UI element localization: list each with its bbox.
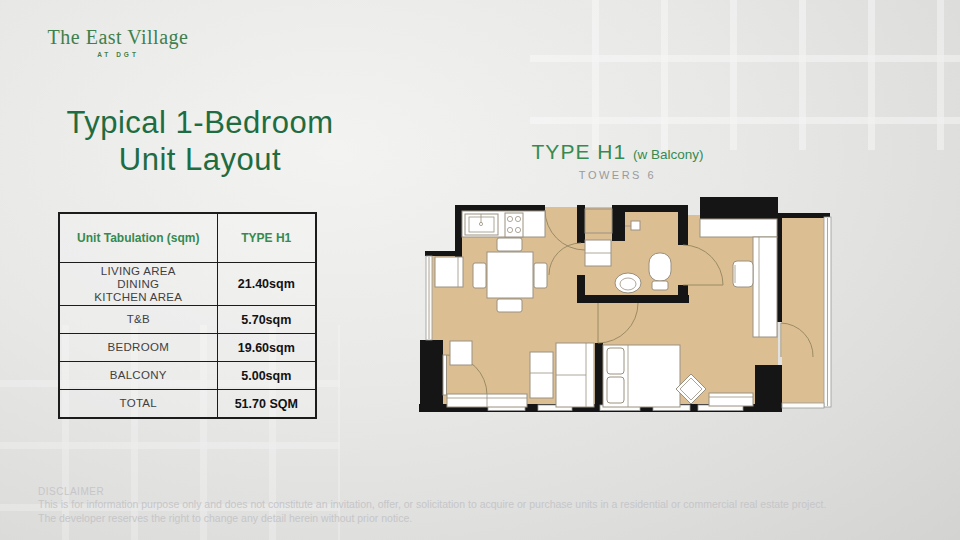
plan-type-suffix: (w Balcony): [633, 147, 704, 162]
disclaimer: DISCLAIMER This is for information purpo…: [38, 486, 938, 525]
table-header-type-h1: TYPE H1: [217, 213, 316, 263]
row-value: 5.70sqm: [217, 306, 316, 334]
page-title-line2: Unit Layout: [28, 141, 372, 178]
entry-cabinet: [450, 341, 472, 365]
plan-header: TYPE H1 (w Balcony) TOWERS 6: [460, 140, 775, 181]
entrance-door-leaf: [443, 355, 447, 395]
plan-type-label: TYPE H1: [532, 140, 627, 163]
brand-logo: The East Village AT DGT: [28, 26, 208, 58]
row-value: 51.70 SQM: [217, 390, 316, 419]
stove-icon: [505, 213, 523, 237]
row-label: BEDROOM: [59, 334, 217, 362]
row-label: T&B: [59, 306, 217, 334]
balcony-bottom-rail: [782, 403, 824, 408]
row-value: 21.40sqm: [217, 263, 316, 306]
row-value: 19.60sqm: [217, 334, 316, 362]
bedroom-bench: [709, 393, 753, 406]
dining-table: [487, 252, 533, 298]
page-title: Typical 1-Bedroom Unit Layout: [28, 104, 372, 178]
wardrobe-desk: [753, 237, 777, 337]
side-table: [530, 352, 553, 398]
plan-subtitle-towers: TOWERS 6: [460, 169, 775, 181]
refrigerator: [435, 257, 463, 287]
plan-type-title: TYPE H1 (w Balcony): [460, 140, 775, 164]
unit-tabulation-table: Unit Tabulation (sqm) TYPE H1 LIVING ARE…: [58, 212, 317, 419]
background-grid-top-right: [530, 0, 960, 150]
disclaimer-line2: The developer reserves the right to chan…: [38, 511, 938, 525]
table-row: BALCONY 5.00sqm: [59, 362, 316, 390]
row-value: 5.00sqm: [217, 362, 316, 390]
brand-name: The East Village: [28, 26, 208, 49]
disclaimer-heading: DISCLAIMER: [38, 486, 938, 497]
table-row: T&B 5.70sqm: [59, 306, 316, 334]
row-label: BALCONY: [59, 362, 217, 390]
toilet-base: [652, 281, 668, 290]
desk-chair: [733, 261, 753, 287]
disclaimer-line1: This is for information purpose only and…: [38, 497, 938, 511]
toilet-icon: [649, 253, 671, 281]
table-row: TOTAL 51.70 SQM: [59, 390, 316, 419]
row-label: LIVING AREA DINING KITCHEN AREA: [59, 263, 217, 306]
brand-tagline: AT DGT: [28, 51, 208, 58]
row-label: TOTAL: [59, 390, 217, 419]
balcony-floor: [782, 217, 828, 407]
dining-chair: [473, 263, 486, 288]
bedroom-ledge: [700, 219, 777, 237]
table-header-row: Unit Tabulation (sqm) TYPE H1: [59, 213, 316, 263]
floor-plan: [419, 195, 838, 416]
pillow: [607, 377, 624, 403]
table-row: BEDROOM 19.60sqm: [59, 334, 316, 362]
shower-head-icon: [631, 221, 640, 230]
dining-chair: [534, 263, 547, 288]
page-title-line1: Typical 1-Bedroom: [28, 104, 372, 141]
table-header-unit-tabulation: Unit Tabulation (sqm): [59, 213, 217, 263]
dining-chair: [497, 238, 522, 251]
bath-closet: [585, 209, 612, 233]
table-row: LIVING AREA DINING KITCHEN AREA 21.40sqm: [59, 263, 316, 306]
dining-chair: [497, 299, 522, 312]
pillow: [607, 348, 624, 374]
